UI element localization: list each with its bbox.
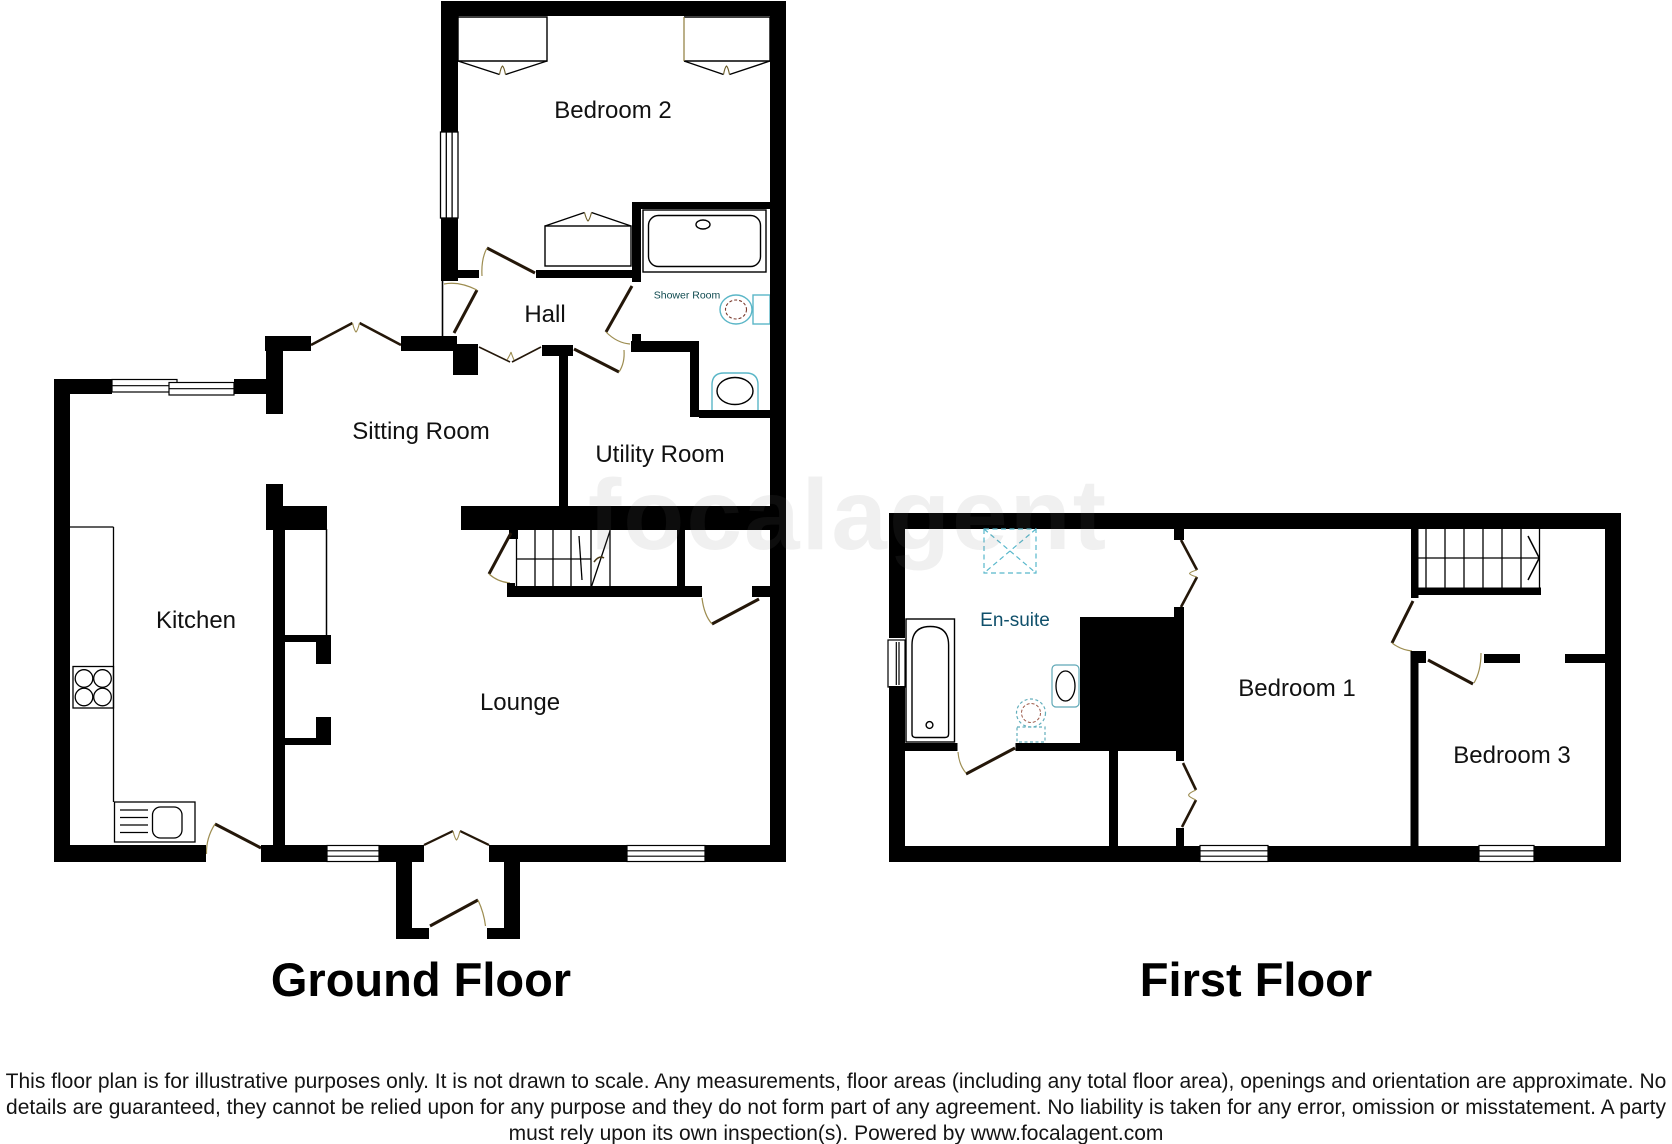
svg-text:First Floor: First Floor (1140, 953, 1372, 1006)
svg-text:focalagent: focalagent (588, 459, 1108, 571)
svg-text:This floor plan is for illustr: This floor plan is for illustrative purp… (6, 1070, 1667, 1093)
svg-text:Lounge: Lounge (480, 689, 560, 716)
svg-text:En-suite: En-suite (980, 610, 1050, 631)
svg-text:must rely upon its own inspect: must rely upon its own inspection(s). Po… (509, 1122, 1164, 1144)
svg-text:Kitchen: Kitchen (156, 607, 236, 634)
svg-text:Shower Room: Shower Room (654, 290, 721, 302)
svg-text:Ground Floor: Ground Floor (271, 953, 571, 1006)
svg-text:Hall: Hall (524, 301, 565, 328)
svg-text:details are guaranteed, they c: details are guaranteed, they cannot be r… (6, 1096, 1666, 1119)
svg-text:Bedroom 1: Bedroom 1 (1238, 675, 1355, 702)
svg-text:Sitting Room: Sitting Room (352, 418, 489, 445)
svg-text:Bedroom 2: Bedroom 2 (554, 97, 671, 124)
svg-text:Bedroom 3: Bedroom 3 (1453, 742, 1570, 769)
